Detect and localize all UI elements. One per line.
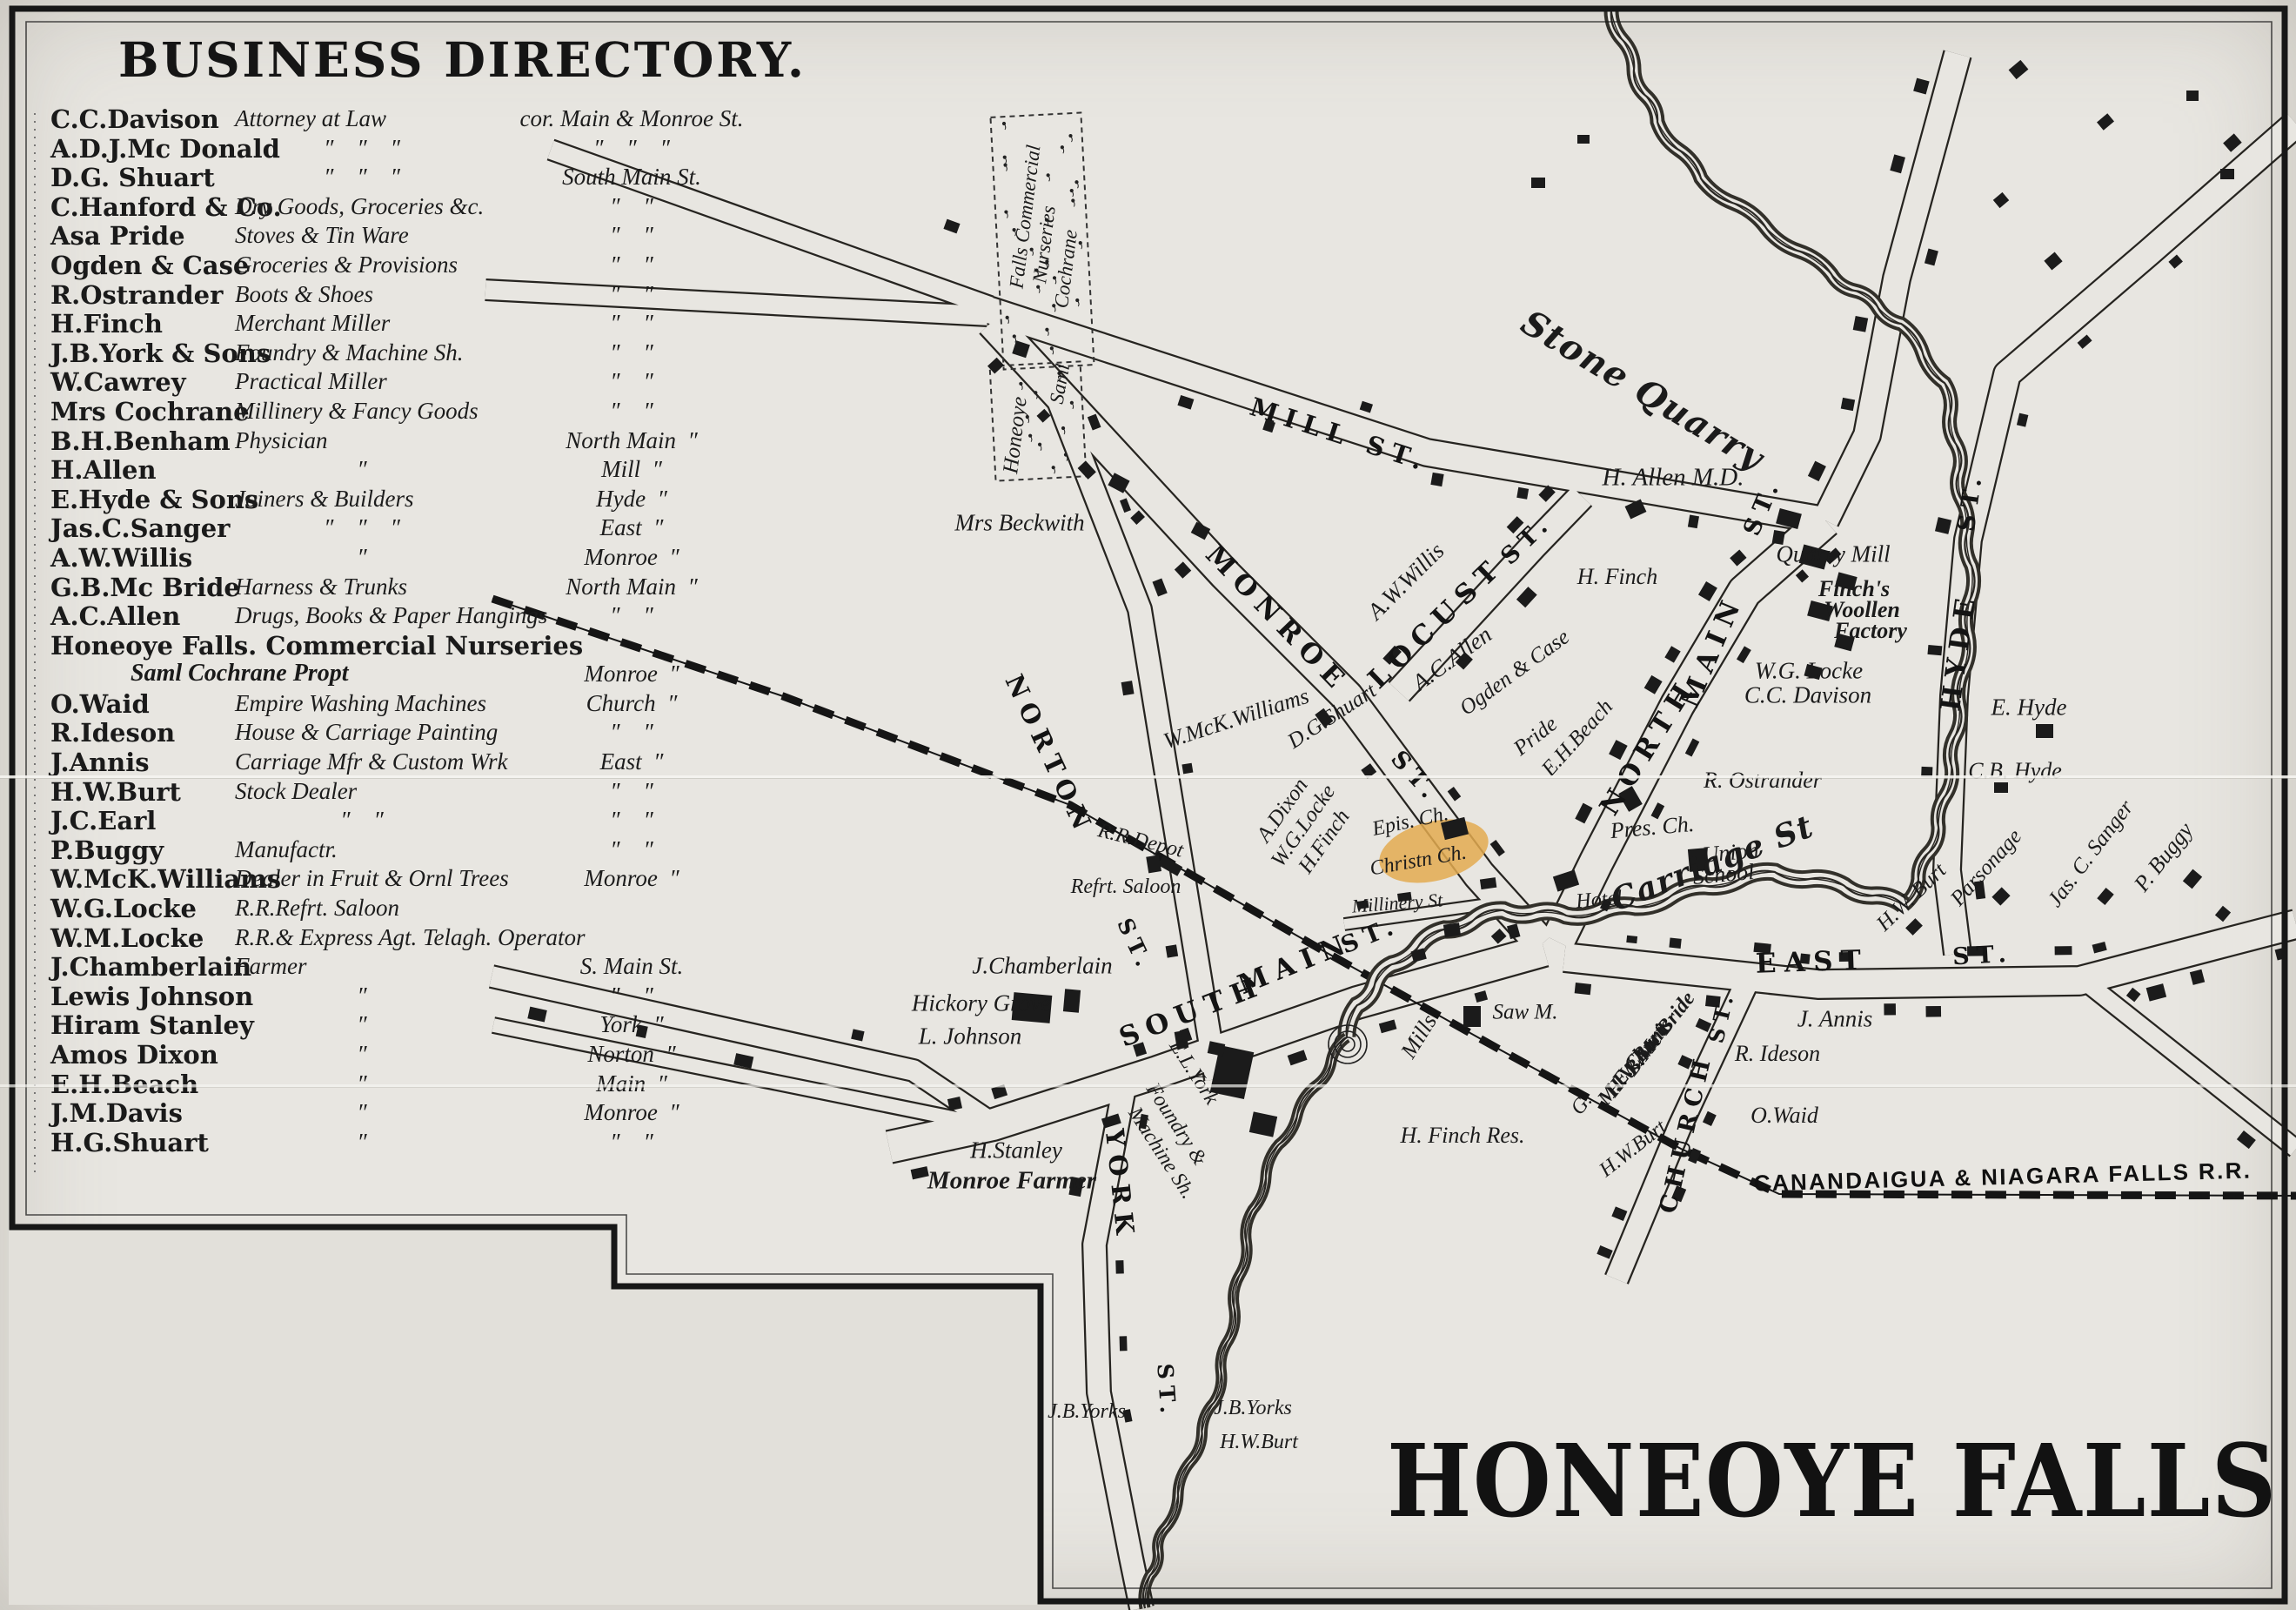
- directory-location: ″ ″: [479, 807, 785, 834]
- directory-location: ″ ″: [479, 836, 785, 863]
- directory-business: House & Carriage Painting: [235, 719, 489, 746]
- directory-name: R.Ideson: [50, 718, 175, 748]
- directory-name: C.C.Davison: [50, 104, 219, 134]
- directory-row: Honeoye Falls. Commercial Nurseries: [0, 631, 1027, 661]
- directory-name: A.W.Willis: [50, 543, 192, 573]
- map-sheet: MILL ST.MONROEST.LOCUSTST.NORTONST.NORTH…: [0, 0, 2296, 1610]
- directory-location: ″ ″: [479, 1129, 785, 1156]
- directory-business: Stoves & Tin Ware: [235, 222, 489, 249]
- directory-row: H.G.Shuart″″ ″: [0, 1128, 1027, 1157]
- directory-location: cor. Main & Monroe St.: [479, 105, 785, 132]
- directory-business: R.R.Refrt. Saloon: [235, 895, 489, 922]
- directory-row: R.OstranderBoots & Shoes″ ″: [0, 280, 1027, 310]
- directory-location: ″ ″: [479, 983, 785, 1010]
- place-label: O.Waid: [1750, 1104, 1818, 1127]
- directory-location: S. Main St.: [479, 953, 785, 980]
- street-label: ST.: [1951, 943, 2013, 969]
- street-label: ST.: [1154, 1363, 1179, 1420]
- directory-row: Hiram Stanley″York ″: [0, 1010, 1027, 1040]
- directory-row: J.ChamberlainFarmerS. Main St.: [0, 952, 1027, 982]
- directory-business: Stock Dealer: [235, 778, 489, 805]
- directory-location: North Main ″: [479, 427, 785, 454]
- directory-location: ″ ″: [479, 222, 785, 249]
- directory-business: Drugs, Books & Paper Hangings: [235, 602, 489, 629]
- directory-row: W.G.LockeR.R.Refrt. Saloon: [0, 894, 1027, 923]
- directory-name: Ogden & Case: [50, 251, 249, 280]
- scan-fold-line: [0, 775, 2296, 778]
- directory-row: A.C.AllenDrugs, Books & Paper Hangings″ …: [0, 601, 1027, 631]
- directory-row: A.D.J.Mc Donald″ ″ ″″ ″ ″: [0, 134, 1027, 164]
- directory-name: D.G. Shuart: [50, 163, 215, 192]
- directory-row: C.C.DavisonAttorney at Lawcor. Main & Mo…: [0, 104, 1027, 134]
- directory-location: Monroe ″: [479, 865, 785, 892]
- place-label: W.G. Locke: [1755, 660, 1863, 683]
- directory-business: Attorney at Law: [235, 105, 489, 132]
- directory-row: Saml Cochrane ProptMonroe ″: [0, 660, 1027, 689]
- place-label: Quarry Mill: [1776, 543, 1890, 567]
- directory-row: J.AnnisCarriage Mfr & Custom WrkEast ″: [0, 748, 1027, 777]
- directory-name: B.H.Benham: [50, 426, 231, 456]
- directory-business: R.R.& Express Agt. Telagh. Operator: [235, 924, 489, 951]
- directory-name: H.W.Burt: [50, 777, 181, 807]
- directory-row: E.Hyde & SonsJoiners & BuildersHyde ″: [0, 485, 1027, 514]
- place-label: H.W.Burt: [1220, 1432, 1298, 1452]
- directory-row: Lewis Johnson″″ ″: [0, 982, 1027, 1011]
- directory-business: ″ ″ ″: [235, 514, 489, 541]
- directory-row: Jas.C.Sanger″ ″ ″East ″: [0, 513, 1027, 543]
- place-label: C.B. Hyde: [1968, 760, 2062, 782]
- directory-row: A.W.Willis″Monroe ″: [0, 543, 1027, 573]
- directory-name: H.G.Shuart: [50, 1128, 209, 1157]
- directory-business: Physician: [235, 427, 489, 454]
- directory-location: ″ ″: [479, 310, 785, 337]
- directory-location: North Main ″: [479, 574, 785, 600]
- directory-location: Church ″: [479, 690, 785, 717]
- directory-row: J.M.Davis″Monroe ″: [0, 1098, 1027, 1128]
- place-label: R. Ideson: [1735, 1043, 1820, 1065]
- street-label: EAST: [1755, 947, 1869, 978]
- directory-row: R.IdesonHouse & Carriage Painting″ ″: [0, 718, 1027, 748]
- directory-row: H.Allen″Mill ″: [0, 455, 1027, 485]
- directory-business: Empire Washing Machines: [235, 690, 489, 717]
- directory-row: J.C.Earl″ ″″ ″: [0, 806, 1027, 835]
- directory-location: South Main St.: [479, 164, 785, 191]
- directory-name: Jas.C.Sanger: [50, 513, 230, 543]
- directory-location: ″ ″: [479, 368, 785, 395]
- directory-business: Boots & Shoes: [235, 281, 489, 308]
- directory-row: P.BuggyManufactr.″ ″: [0, 835, 1027, 865]
- directory-name: H.Finch: [50, 309, 163, 339]
- directory-business: ″: [235, 544, 489, 571]
- directory-business: Merchant Miller: [235, 310, 489, 337]
- directory-name: Amos Dixon: [50, 1040, 218, 1070]
- directory-business: Groceries & Provisions: [235, 252, 489, 278]
- directory-row: W.M.LockeR.R.& Express Agt. Telagh. Oper…: [0, 923, 1027, 953]
- business-directory: BUSINESS DIRECTORY. C.C.DavisonAttorney …: [0, 0, 1035, 1218]
- directory-name: J.M.Davis: [50, 1098, 183, 1128]
- directory-location: ″ ″: [479, 398, 785, 425]
- directory-row: W.McK.WilliamsDealer in Fruit & Ornl Tre…: [0, 864, 1027, 894]
- directory-rows: C.C.DavisonAttorney at Lawcor. Main & Mo…: [0, 104, 1027, 1157]
- directory-business: Manufactr.: [235, 836, 489, 863]
- place-label: E. Hyde: [1991, 696, 2067, 720]
- place-label: H. Allen M.D.: [1603, 466, 1744, 491]
- scan-fold-line: [0, 1084, 2296, 1087]
- directory-name: E.Hyde & Sons: [50, 485, 258, 514]
- directory-name: W.Cawrey: [50, 367, 186, 397]
- directory-name: P.Buggy: [50, 835, 164, 865]
- directory-name: Asa Pride: [50, 221, 185, 251]
- directory-row: Mrs CochraneMillinery & Fancy Goods″ ″: [0, 397, 1027, 426]
- directory-location: East ″: [479, 514, 785, 541]
- directory-name: Honeoye Falls. Commercial Nurseries: [50, 631, 583, 661]
- directory-business: Practical Miller: [235, 368, 489, 395]
- directory-location: Mill ″: [479, 456, 785, 483]
- directory-location: Monroe ″: [479, 1099, 785, 1126]
- place-label: J.B.Yorks: [1214, 1398, 1292, 1419]
- directory-name: J.Annis: [50, 748, 150, 777]
- directory-row: D.G. Shuart″ ″ ″South Main St.: [0, 163, 1027, 192]
- directory-business: ″: [235, 456, 489, 483]
- place-label: Factory: [1834, 620, 1907, 642]
- directory-name: H.Allen: [50, 455, 157, 485]
- directory-business: ″: [235, 1041, 489, 1068]
- directory-location: Hyde ″: [479, 486, 785, 513]
- directory-location: ″ ″: [479, 778, 785, 805]
- directory-name: Lewis Johnson: [50, 982, 253, 1011]
- directory-name: W.M.Locke: [50, 923, 204, 953]
- directory-business: Millinery & Fancy Goods: [235, 398, 489, 425]
- directory-business: ″ ″: [235, 807, 489, 834]
- directory-location: ″ ″: [479, 252, 785, 278]
- directory-location: ″ ″ ″: [479, 135, 785, 162]
- directory-row: H.W.BurtStock Dealer″ ″: [0, 777, 1027, 807]
- place-label: C.C. Davison: [1744, 684, 1871, 708]
- place-label: J. Annis: [1797, 1008, 1873, 1031]
- directory-business: ″: [235, 983, 489, 1010]
- directory-location: ″ ″: [479, 339, 785, 366]
- directory-row: Asa PrideStoves & Tin Ware″ ″: [0, 221, 1027, 251]
- directory-row: H.FinchMerchant Miller″ ″: [0, 309, 1027, 339]
- directory-name: J.Chamberlain: [50, 952, 251, 982]
- place-label: Refrt. Saloon: [1071, 876, 1181, 897]
- map-title: HONEOYE FALLS: [1387, 1431, 2278, 1531]
- place-label: Saw M.: [1493, 1002, 1558, 1023]
- directory-title: BUSINESS DIRECTORY.: [118, 31, 807, 88]
- directory-business: Harness & Trunks: [235, 574, 489, 600]
- directory-business: Carriage Mfr & Custom Wrk: [235, 748, 489, 775]
- directory-business: Foundry & Machine Sh.: [235, 339, 489, 366]
- directory-name: Hiram Stanley: [50, 1010, 254, 1040]
- directory-location: ″ ″: [479, 281, 785, 308]
- directory-row: G.B.Mc BrideHarness & TrunksNorth Main ″: [0, 573, 1027, 602]
- directory-business: Joiners & Builders: [235, 486, 489, 513]
- directory-row: Amos Dixon″Norton ″: [0, 1040, 1027, 1070]
- directory-business: ″ ″ ″: [235, 164, 489, 191]
- directory-location: East ″: [479, 748, 785, 775]
- place-label: H. Finch: [1577, 566, 1657, 588]
- directory-name: W.G.Locke: [50, 894, 197, 923]
- directory-row: Ogden & CaseGroceries & Provisions″ ″: [0, 251, 1027, 280]
- directory-name: J.C.Earl: [50, 806, 156, 835]
- place-label: R. Ostrander: [1704, 769, 1822, 792]
- directory-row: W.CawreyPractical Miller″ ″: [0, 367, 1027, 397]
- directory-business: Dealer in Fruit & Ornl Trees: [235, 865, 489, 892]
- directory-location: ″ ″: [479, 719, 785, 746]
- directory-name: Mrs Cochrane: [50, 397, 250, 426]
- directory-business: ″: [235, 1011, 489, 1038]
- directory-business: ″ ″ ″: [235, 135, 489, 162]
- directory-location: ″ ″: [479, 602, 785, 629]
- directory-location: Norton ″: [479, 1041, 785, 1068]
- directory-location: ″ ″: [479, 193, 785, 220]
- directory-business: Farmer: [235, 953, 489, 980]
- directory-location: York ″: [479, 1011, 785, 1038]
- directory-row: O.WaidEmpire Washing MachinesChurch ″: [0, 689, 1027, 719]
- directory-location: Monroe ″: [479, 661, 785, 688]
- directory-row: J.B.York & SonsFoundry & Machine Sh.″ ″: [0, 339, 1027, 368]
- directory-business: Dry Goods, Groceries &c.: [235, 193, 489, 220]
- place-label: J.B.Yorks: [1048, 1401, 1126, 1422]
- directory-name: Saml Cochrane Propt: [131, 660, 348, 688]
- directory-business: ″: [235, 1129, 489, 1156]
- place-label: H. Finch Res.: [1401, 1124, 1525, 1147]
- directory-name: O.Waid: [50, 689, 150, 719]
- directory-row: B.H.BenhamPhysicianNorth Main ″: [0, 426, 1027, 456]
- directory-business: ″: [235, 1099, 489, 1126]
- directory-name: A.C.Allen: [50, 601, 180, 631]
- directory-name: G.B.Mc Bride: [50, 573, 240, 602]
- directory-name: R.Ostrander: [50, 280, 223, 310]
- directory-location: Monroe ″: [479, 544, 785, 571]
- directory-row: C.Hanford & Co.Dry Goods, Groceries &c.″…: [0, 192, 1027, 222]
